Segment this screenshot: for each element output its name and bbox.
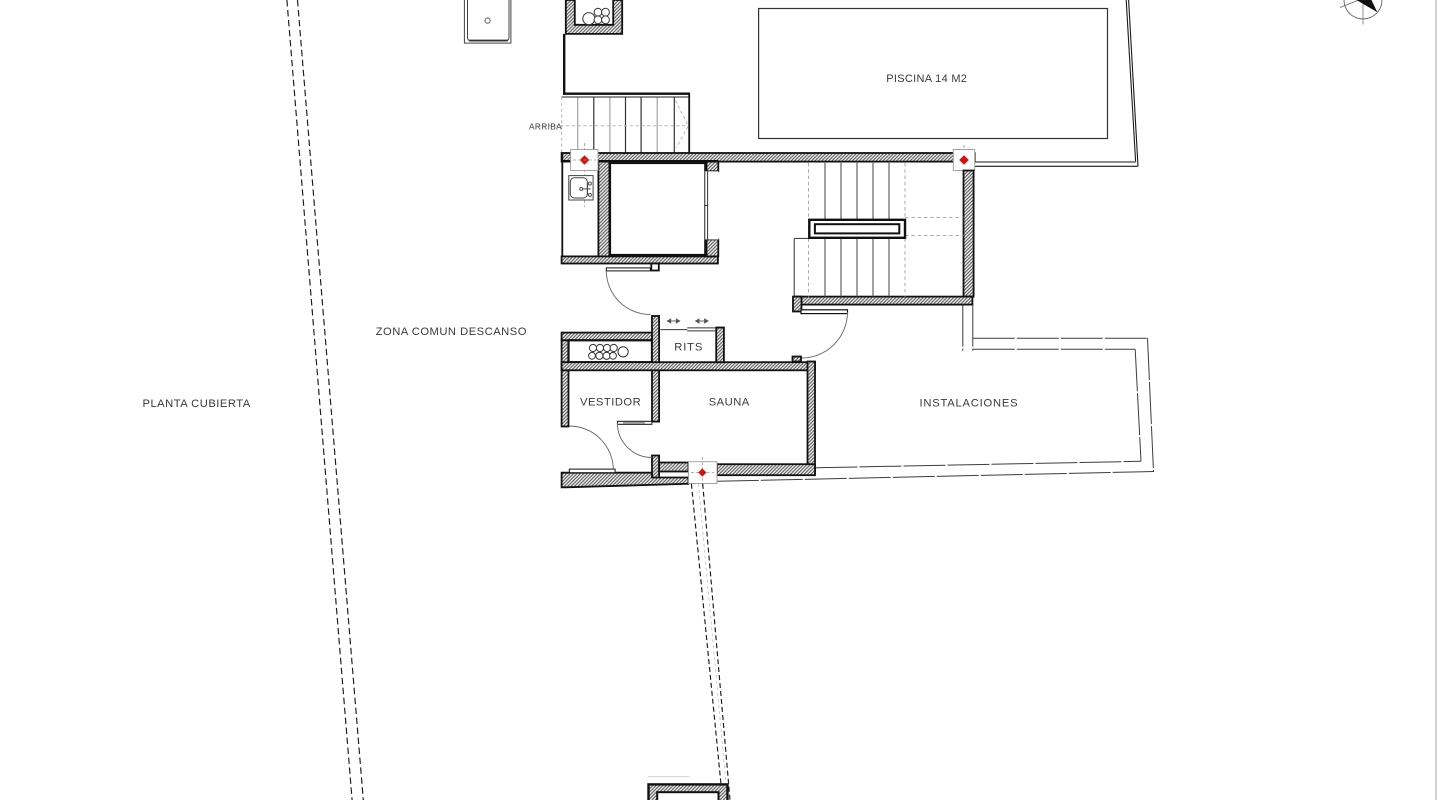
svg-text:PLANTA CUBIERTA: PLANTA CUBIERTA: [143, 398, 251, 410]
svg-text:VESTIDOR: VESTIDOR: [580, 397, 641, 409]
svg-text:RITS: RITS: [674, 342, 703, 354]
svg-text:INSTALACIONES: INSTALACIONES: [920, 397, 1019, 409]
svg-text:ZONA COMUN DESCANSO: ZONA COMUN DESCANSO: [376, 326, 527, 338]
svg-text:ARRIBA: ARRIBA: [529, 121, 562, 131]
svg-text:PISCINA 14 M2: PISCINA 14 M2: [886, 73, 967, 85]
svg-text:SAUNA: SAUNA: [709, 397, 750, 409]
